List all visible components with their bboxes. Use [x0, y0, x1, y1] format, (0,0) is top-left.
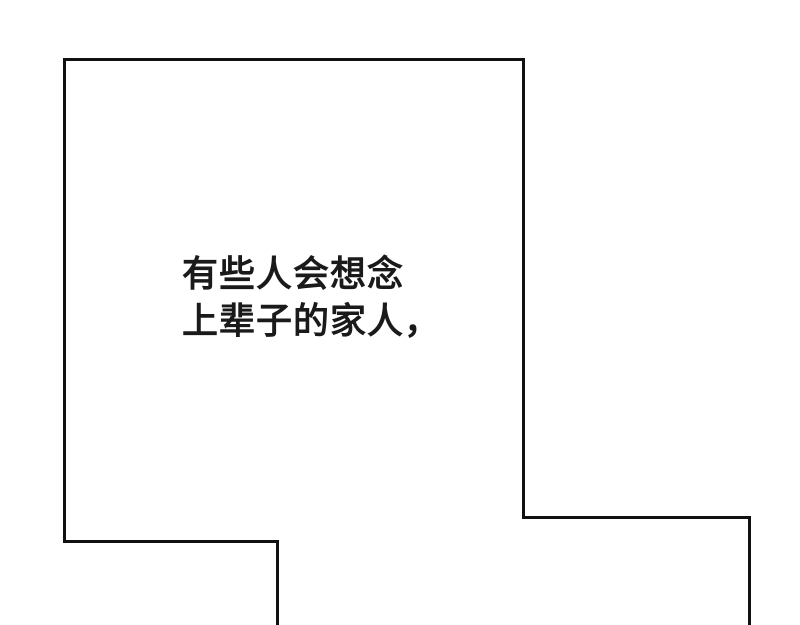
panel-border-step-right	[522, 516, 751, 519]
panel-border-right-descender	[748, 516, 751, 625]
panel-border-bottom	[63, 540, 279, 543]
narration-text: 有些人会想念 上辈子的家人，	[182, 250, 441, 344]
narration-line-2: 上辈子的家人，	[182, 297, 441, 344]
panel-border-top	[63, 58, 525, 61]
panel-border-left-descender	[276, 540, 279, 625]
comic-page: 有些人会想念 上辈子的家人，	[0, 0, 800, 625]
panel-border-left	[63, 58, 66, 543]
panel-border-right	[522, 58, 525, 519]
narration-line-1: 有些人会想念	[182, 250, 441, 297]
